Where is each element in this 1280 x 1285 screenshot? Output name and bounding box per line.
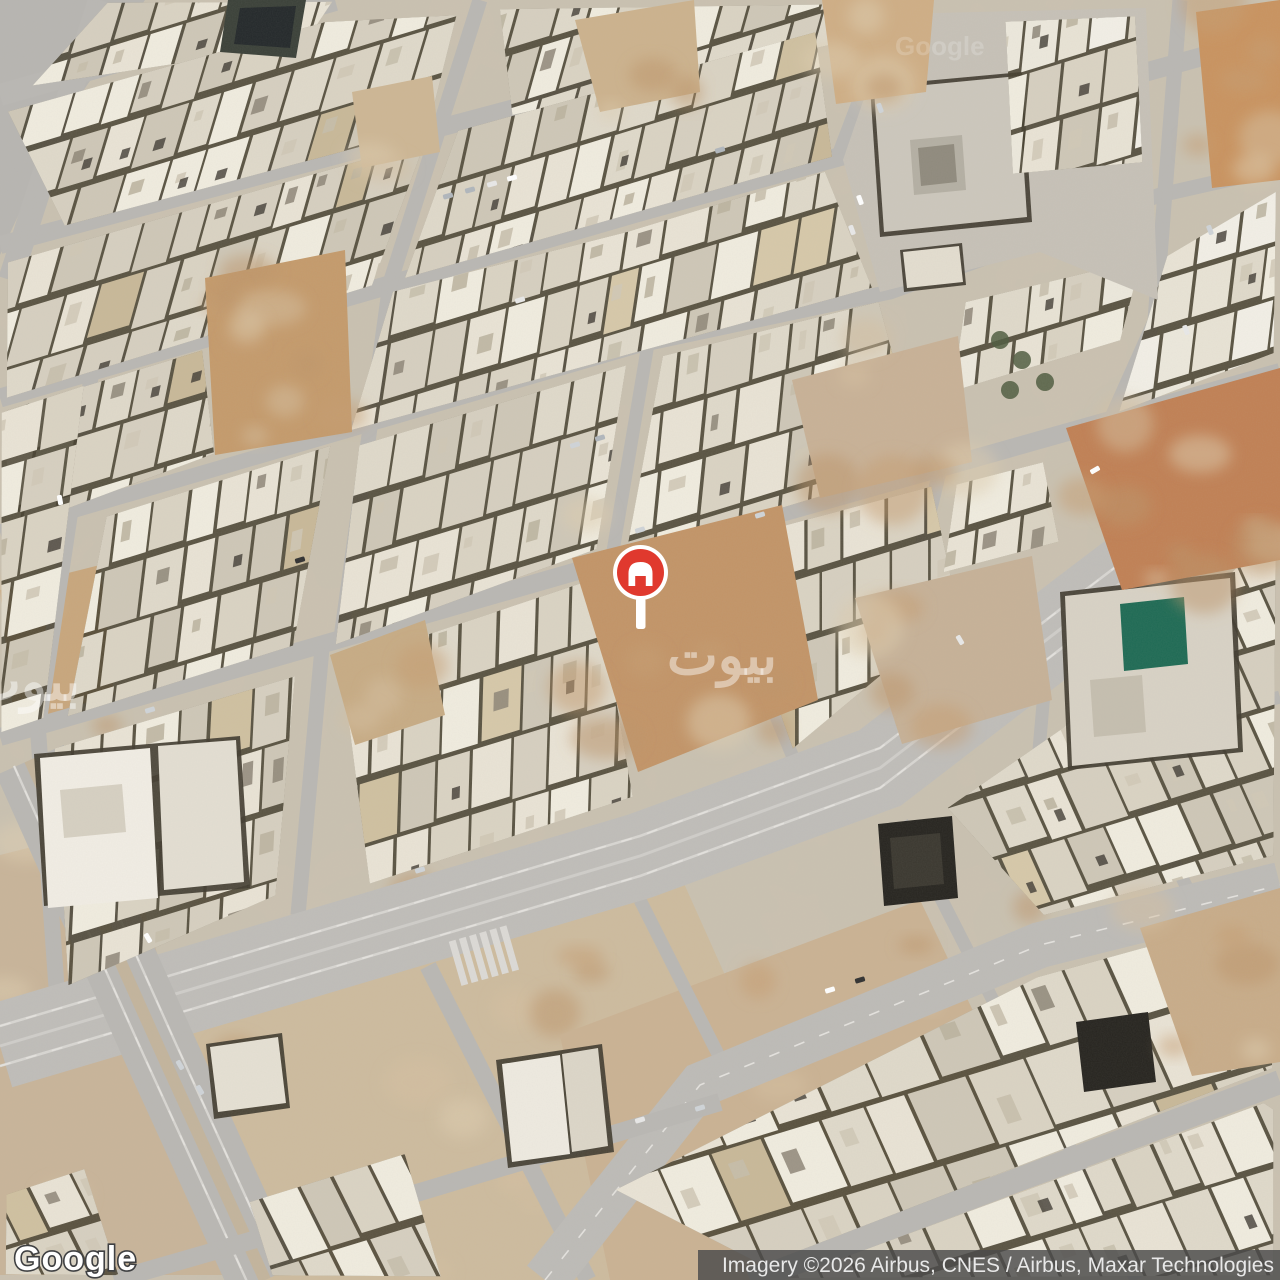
svg-text:Google: Google (895, 31, 985, 61)
svg-text:بيوت: بيوت (667, 626, 777, 689)
svg-text:Imagery ©2026 Airbus, CNES / A: Imagery ©2026 Airbus, CNES / Airbus, Max… (722, 1254, 1274, 1277)
svg-text:Google: Google (14, 1240, 137, 1278)
svg-text:بيوت: بيوت (0, 652, 80, 715)
